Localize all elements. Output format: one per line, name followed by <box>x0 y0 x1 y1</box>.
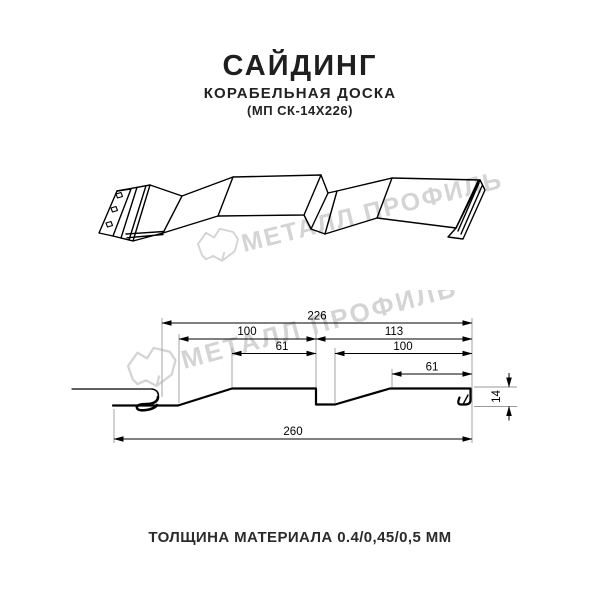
product-subtitle: КОРАБЕЛЬНАЯ ДОСКА <box>0 85 600 102</box>
dim-label-right-pan: 100 <box>393 341 412 353</box>
dim-label-height: 14 <box>491 390 503 403</box>
section-profile <box>72 389 471 411</box>
dim-label-left-flat: 61 <box>276 341 289 353</box>
dim-label-right-module: 113 <box>385 326 403 338</box>
panel-profile-line <box>113 389 471 406</box>
dim-label-left-pan: 100 <box>237 326 256 338</box>
dim-label-module-width: 226 <box>307 311 326 323</box>
product-model-code: (МП СК-14Х226) <box>0 103 600 118</box>
dim-label-right-flat: 61 <box>426 361 439 373</box>
dim-label-overall-width: 260 <box>283 426 302 438</box>
profile-cross-section: МЕТАЛЛ ПРОФИЛЬ <box>0 290 600 465</box>
left-lock-curl <box>137 397 158 410</box>
material-thickness-note: ТОЛЩИНА МАТЕРИАЛА 0.4/0,45/0,5 ММ <box>0 529 600 546</box>
brand-logo-icon-2 <box>128 348 176 386</box>
brand-logo-icon <box>198 229 238 261</box>
brand-watermark-2: МЕТАЛЛ ПРОФИЛЬ <box>128 290 461 386</box>
brand-watermark-text-2: МЕТАЛЛ ПРОФИЛЬ <box>178 290 461 375</box>
page-title: САЙДИНГ <box>0 50 600 83</box>
product-drawing-card: САЙДИНГ КОРАБЕЛЬНАЯ ДОСКА (МП СК-14Х226)… <box>0 0 600 600</box>
profile-3d-drawing: МЕТАЛЛ ПРОФИЛЬ <box>0 140 600 280</box>
